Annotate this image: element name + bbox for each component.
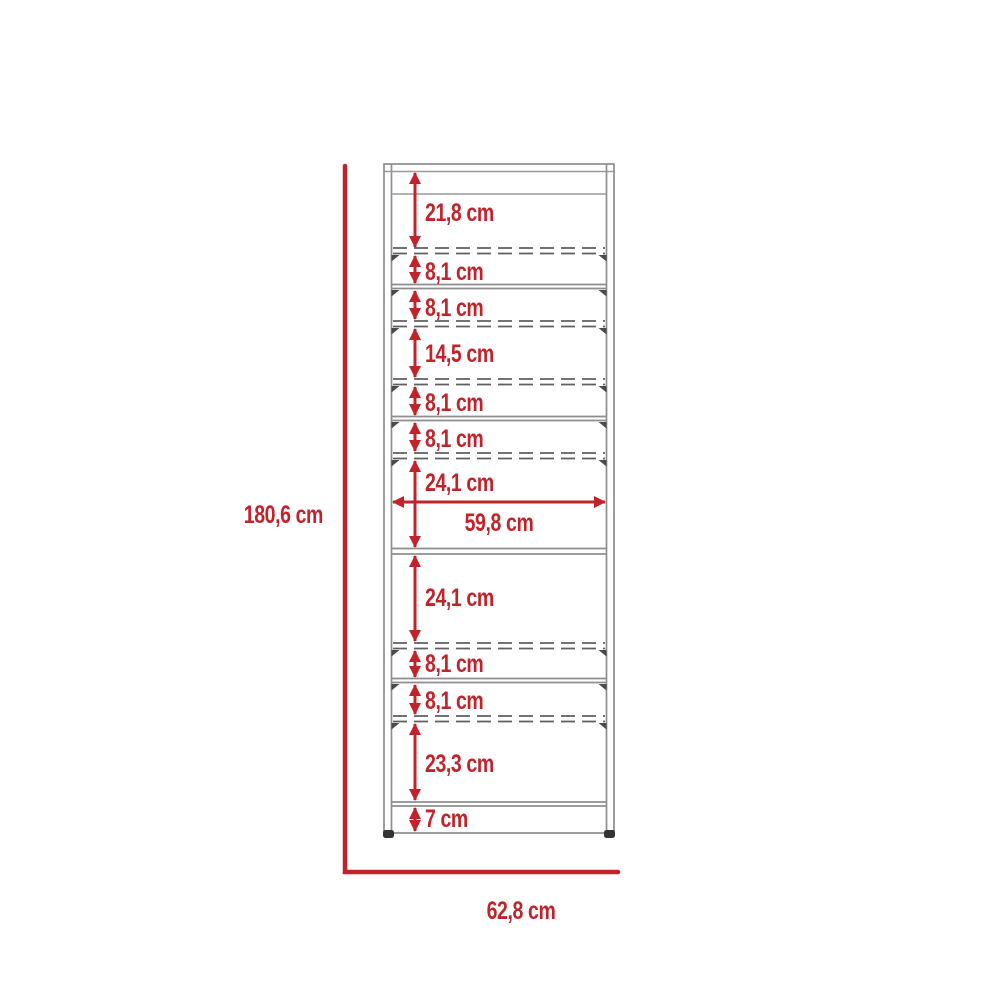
dim-segment-1: 21,8 cm <box>415 173 494 247</box>
dimension-diagram-page: 21,8 cm 8,1 cm 8,1 cm 14,5 cm 8,1 cm 8,1… <box>0 0 1000 1000</box>
fixed-shelf-3-center <box>392 549 607 555</box>
shelf-pin-left-icon <box>392 684 400 691</box>
dim-segment-9: 8,1 cm <box>415 650 483 678</box>
dimension-label: 24,1 cm <box>425 469 494 497</box>
shelf-pin-left-icon <box>392 650 400 657</box>
dimension-label: 7 cm <box>425 805 468 833</box>
inner-width-label: 59,8 cm <box>465 509 534 537</box>
shelf-pin-right-icon <box>599 386 607 393</box>
cabinet-outline <box>384 164 614 833</box>
shelf-pin-left-icon <box>392 290 400 297</box>
adjustable-shelf-position-5 <box>392 643 607 657</box>
dim-segment-5: 8,1 cm <box>415 387 483 417</box>
dim-segment-3: 8,1 cm <box>415 291 483 322</box>
dimension-diagram: 21,8 cm 8,1 cm 8,1 cm 14,5 cm 8,1 cm 8,1… <box>0 0 1000 1000</box>
cabinet-foot-left <box>383 830 394 838</box>
dim-segment-10: 8,1 cm <box>415 685 483 715</box>
cabinet-outer-frame <box>384 164 614 833</box>
shelf-pin-left-icon <box>392 723 400 730</box>
dimension-label: 8,1 cm <box>425 650 483 678</box>
shelf-pin-right-icon <box>599 328 607 335</box>
dim-segment-6: 8,1 cm <box>415 423 483 453</box>
dimension-label: 8,1 cm <box>425 294 483 322</box>
shelf-pin-right-icon <box>599 290 607 297</box>
shelf-pin-right-icon <box>599 650 607 657</box>
overall-width-label: 62,8 cm <box>487 897 556 925</box>
cabinet-foot-right <box>604 830 615 838</box>
fixed-shelf-bottom <box>392 802 607 806</box>
cabinet-feet <box>383 830 615 838</box>
dimension-label: 8,1 cm <box>425 425 483 453</box>
dim-segment-11: 23,3 cm <box>415 724 494 800</box>
shelf-pin-right-icon <box>599 422 607 429</box>
shelf-pin-left-icon <box>392 422 400 429</box>
dim-segment-2: 8,1 cm <box>415 256 483 286</box>
shelf-pin-right-icon <box>599 684 607 691</box>
overall-height-label: 180,6 cm <box>244 501 323 529</box>
shelf-pin-right-icon <box>599 460 607 467</box>
shelf-pin-left-icon <box>392 460 400 467</box>
shelf-pin-left-icon <box>392 328 400 335</box>
fixed-shelf-1 <box>392 285 607 297</box>
adjustable-shelf-position-2 <box>392 321 607 335</box>
adjustable-shelf-position-1 <box>392 248 607 262</box>
dim-inner-width: 59,8 cm <box>393 502 605 537</box>
dimension-label: 24,1 cm <box>425 584 494 612</box>
adjustable-shelf-position-6 <box>392 716 607 730</box>
shelf-pin-right-icon <box>599 723 607 730</box>
dimension-label: 14,5 cm <box>425 340 494 368</box>
dimension-label: 21,8 cm <box>425 199 494 227</box>
dimension-label: 8,1 cm <box>425 258 483 286</box>
dim-segment-12: 7 cm <box>415 805 468 833</box>
dimension-label: 8,1 cm <box>425 687 483 715</box>
fixed-shelf-2 <box>392 417 607 429</box>
dim-segment-4: 14,5 cm <box>415 329 494 377</box>
adjustable-shelf-position-4 <box>392 453 607 467</box>
dimension-label: 8,1 cm <box>425 389 483 417</box>
fixed-shelf-4 <box>392 679 607 691</box>
dimension-label: 23,3 cm <box>425 750 494 778</box>
dim-segment-8: 24,1 cm <box>415 556 494 641</box>
shelf-pin-left-icon <box>392 386 400 393</box>
shelf-pin-left-icon <box>392 255 400 262</box>
adjustable-shelf-position-3 <box>392 379 607 393</box>
shelf-pin-right-icon <box>599 255 607 262</box>
